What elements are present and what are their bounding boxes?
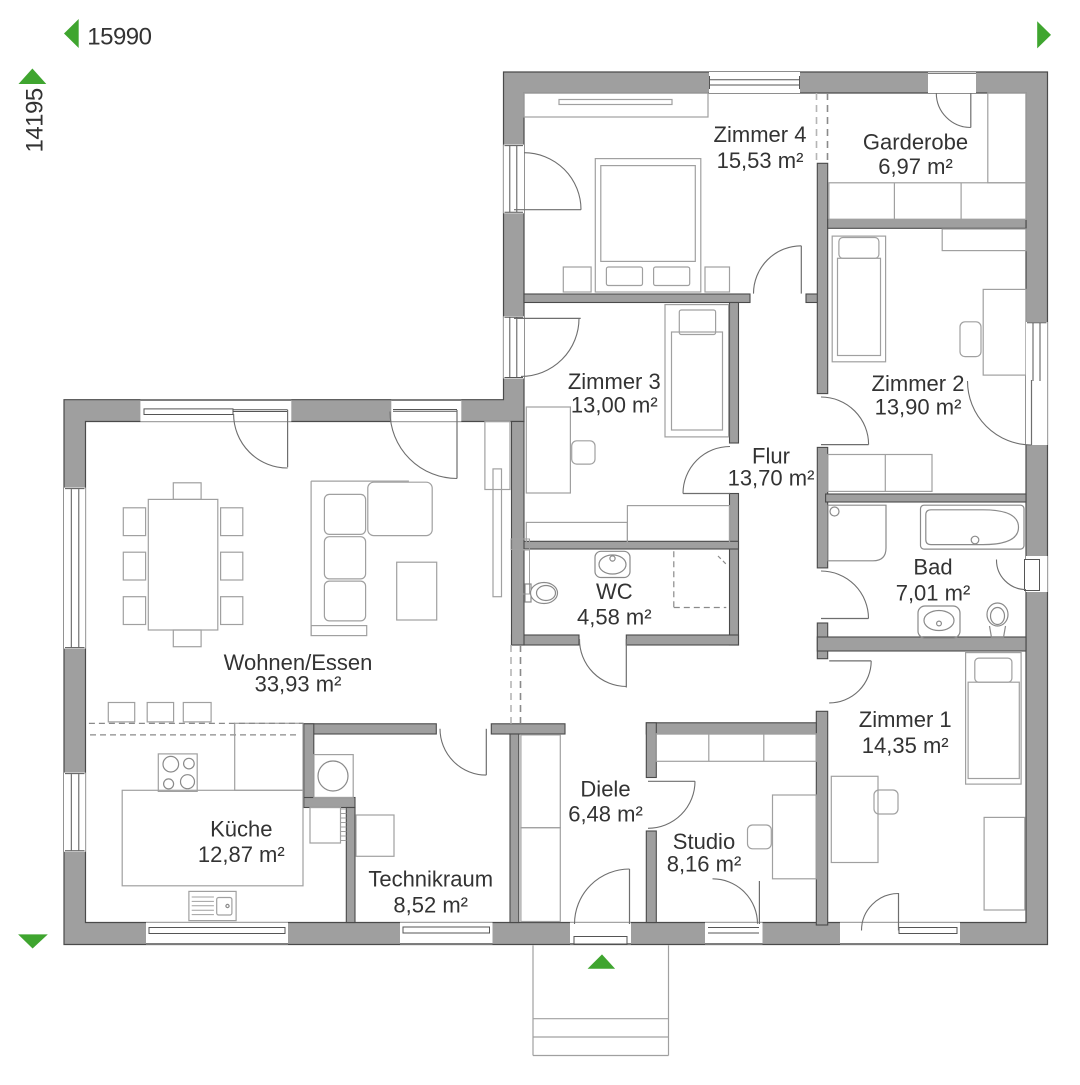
svg-text:15990: 15990 [87,23,151,50]
svg-text:7,01 m²: 7,01 m² [896,581,971,606]
svg-text:13,00 m²: 13,00 m² [571,393,658,418]
svg-text:12,87 m²: 12,87 m² [198,842,285,867]
svg-text:4,58 m²: 4,58 m² [577,605,652,630]
svg-text:13,90 m²: 13,90 m² [875,395,962,420]
svg-text:14195: 14195 [22,88,49,152]
svg-text:Garderobe: Garderobe [863,129,968,154]
svg-text:Küche: Küche [210,816,272,841]
svg-text:Zimmer 1: Zimmer 1 [859,707,952,732]
svg-text:Studio: Studio [673,829,735,854]
svg-text:Bad: Bad [913,555,952,580]
svg-text:15,53 m²: 15,53 m² [717,148,804,173]
svg-text:6,48 m²: 6,48 m² [568,801,643,826]
svg-text:Zimmer 2: Zimmer 2 [872,371,965,396]
svg-text:Zimmer 3: Zimmer 3 [568,369,661,394]
svg-text:Zimmer 4: Zimmer 4 [714,122,807,147]
svg-text:8,16 m²: 8,16 m² [667,851,742,876]
svg-text:Diele: Diele [580,776,630,801]
svg-text:6,97 m²: 6,97 m² [878,154,953,179]
svg-text:13,70 m²: 13,70 m² [728,466,815,491]
svg-text:33,93 m²: 33,93 m² [255,672,342,697]
svg-text:14,35 m²: 14,35 m² [862,733,949,758]
svg-text:8,52 m²: 8,52 m² [393,893,468,918]
svg-text:WC: WC [596,579,633,604]
svg-text:Technikraum: Technikraum [368,866,493,891]
